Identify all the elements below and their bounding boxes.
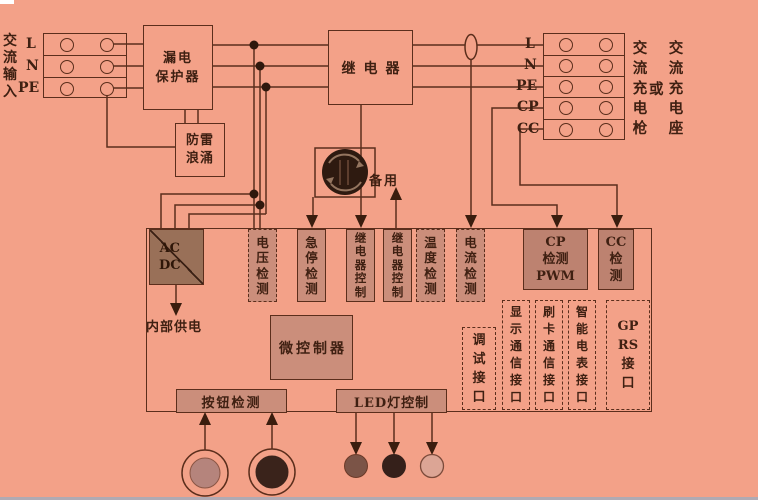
voltage-detect-box: 电 压 检 测 xyxy=(248,229,277,302)
relay-box: 继电器 xyxy=(328,30,413,105)
right-row-label-l: L xyxy=(525,36,535,52)
estop-button-icon xyxy=(315,148,375,197)
terminal-screw xyxy=(100,38,114,52)
display-comm-port-box: 显 示 通 信 接 口 xyxy=(502,300,530,410)
left-row-label-n: N xyxy=(26,58,39,74)
ac-input-label: 交 流 输 入 xyxy=(1,32,19,102)
spare-label: 备用 xyxy=(369,170,399,189)
card-comm-port-box: 刷 卡 通 信 接 口 xyxy=(535,300,563,410)
divider xyxy=(44,55,126,56)
acdc-converter-box: AC DC xyxy=(149,229,204,285)
led-1 xyxy=(345,455,368,478)
terminal-screw xyxy=(559,101,573,115)
button-detect-box: 按钮检测 xyxy=(176,389,287,413)
cp-detect-pwm-box: CP 检测 PWM xyxy=(523,229,588,290)
terminal-screw xyxy=(599,38,613,52)
current-detect-box: 电 流 检 测 xyxy=(456,229,485,302)
right-row-label-n: N xyxy=(524,57,537,73)
terminal-screw xyxy=(599,101,613,115)
terminal-screw xyxy=(559,59,573,73)
button-2 xyxy=(256,456,288,488)
estop-detect-box: 急 停 检 测 xyxy=(297,229,326,302)
terminal-screw xyxy=(559,123,573,137)
relay-control-box-2: 继 电 器 控 制 xyxy=(383,229,412,302)
corner-artifact xyxy=(0,0,14,4)
left-row-label-l: L xyxy=(26,36,36,52)
leakage-protector-box: 漏电 保护器 xyxy=(143,25,213,110)
divider xyxy=(544,97,624,98)
internal-power-label: 内部供电 xyxy=(146,316,202,335)
current-transformer-icon xyxy=(465,35,477,60)
smart-meter-port-box: 智 能 电 表 接 口 xyxy=(568,300,596,410)
mcu-box: 微控制器 xyxy=(270,315,353,380)
terminal-screw xyxy=(559,80,573,94)
charging-gun-label: 交 流 充 电 枪 xyxy=(630,38,650,140)
led-indicators xyxy=(345,455,444,478)
led-control-box: LED灯控制 xyxy=(336,389,447,413)
charging-socket-label: 交 流 充 电 座 xyxy=(666,38,686,140)
or-label: 或 xyxy=(649,78,664,99)
left-row-label-pe: PE xyxy=(18,80,39,96)
right-row-label-cc: CC xyxy=(517,121,539,137)
terminal-screw xyxy=(599,123,613,137)
divider xyxy=(544,119,624,120)
terminal-screw xyxy=(60,38,74,52)
right-row-label-pe: PE xyxy=(516,78,537,94)
terminal-screw xyxy=(60,82,74,96)
debug-port-box: 调 试 接 口 xyxy=(462,327,496,410)
right-row-label-cp: CP xyxy=(517,99,539,115)
divider xyxy=(544,55,624,56)
button-1 xyxy=(190,458,220,488)
output-terminal-block xyxy=(543,33,625,140)
led-3 xyxy=(421,455,444,478)
cc-detect-box: CC 检 测 xyxy=(598,229,634,290)
terminal-screw xyxy=(100,82,114,96)
terminal-screw xyxy=(60,60,74,74)
divider xyxy=(44,77,126,78)
gprs-port-box: GP RS 接 口 xyxy=(606,300,650,410)
input-terminal-block xyxy=(43,33,127,98)
surge-protector-box: 防雷 浪涌 xyxy=(175,123,225,177)
terminal-screw xyxy=(100,60,114,74)
terminal-screw xyxy=(559,38,573,52)
relay-control-box-1: 继 电 器 控 制 xyxy=(346,229,375,302)
divider xyxy=(544,76,624,77)
ev-charger-block-diagram: 交 流 输 入 L N PE 漏电 保护器 防雷 浪涌 继电器 备用 L xyxy=(0,0,758,500)
push-buttons xyxy=(182,449,295,496)
terminal-screw xyxy=(599,80,613,94)
temp-detect-box: 温 度 检 测 xyxy=(416,229,445,302)
terminal-screw xyxy=(599,59,613,73)
led-2 xyxy=(383,455,406,478)
